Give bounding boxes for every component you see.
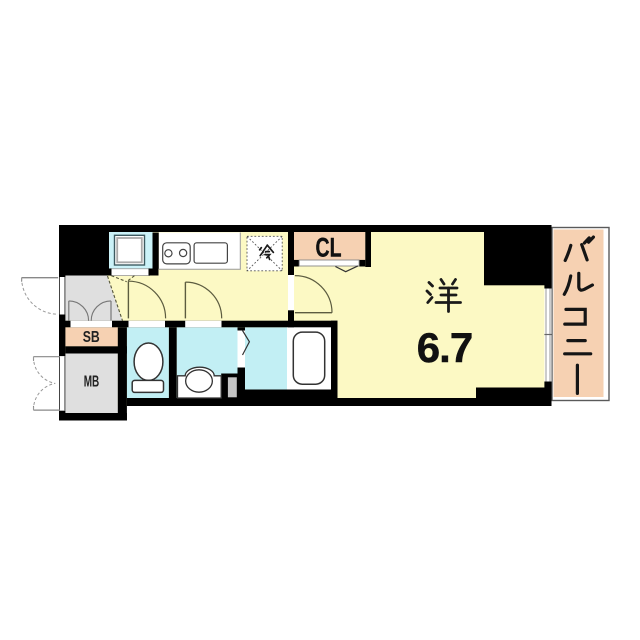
svg-text:SB: SB: [83, 329, 100, 346]
svg-text:CL: CL: [316, 233, 342, 263]
svg-text:6.7: 6.7: [417, 324, 472, 371]
svg-text:MB: MB: [84, 373, 100, 390]
